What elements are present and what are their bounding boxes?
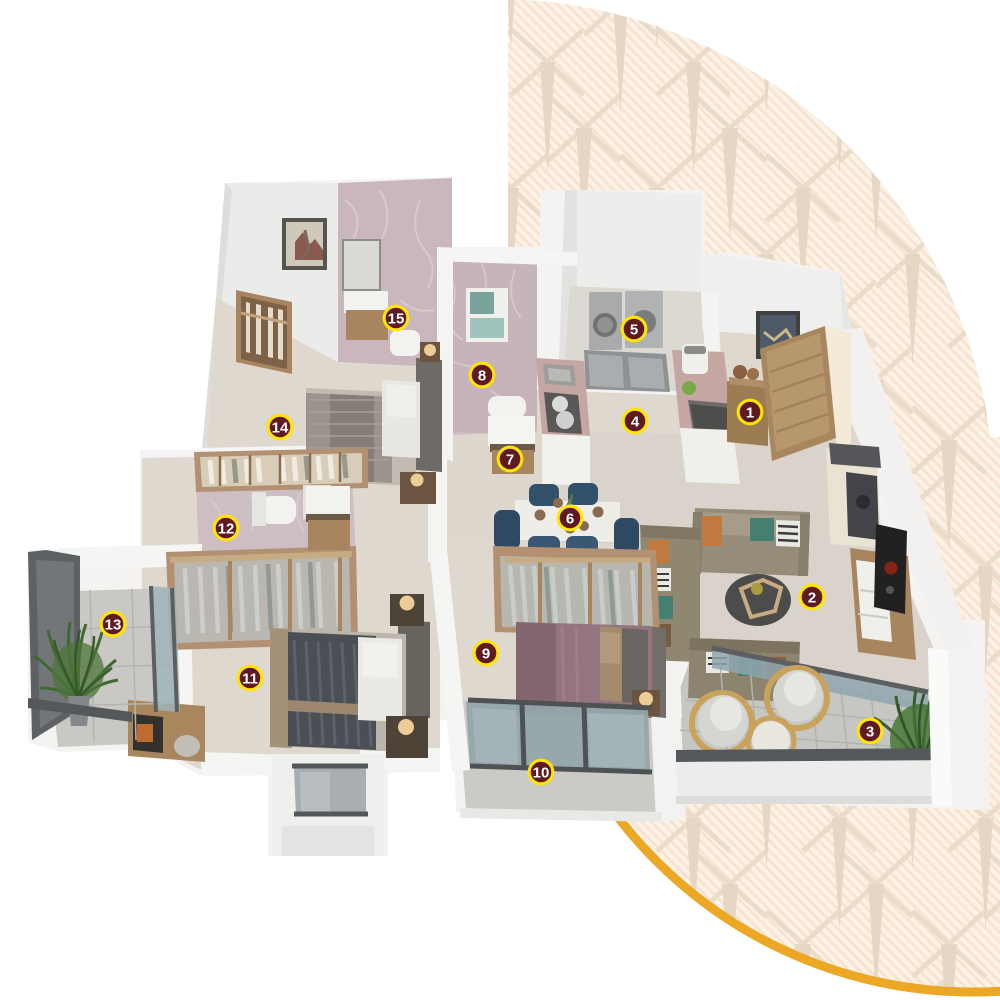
svg-text:3: 3 bbox=[866, 723, 874, 740]
svg-text:6: 6 bbox=[566, 510, 574, 527]
svg-text:12: 12 bbox=[218, 520, 235, 537]
svg-text:8: 8 bbox=[478, 367, 486, 384]
svg-text:5: 5 bbox=[630, 321, 638, 338]
svg-text:15: 15 bbox=[388, 310, 405, 327]
svg-text:7: 7 bbox=[506, 451, 514, 468]
svg-text:9: 9 bbox=[482, 645, 490, 662]
svg-text:1: 1 bbox=[746, 404, 754, 421]
svg-text:11: 11 bbox=[242, 670, 258, 687]
svg-text:4: 4 bbox=[631, 413, 640, 430]
svg-text:2: 2 bbox=[808, 589, 816, 606]
svg-text:10: 10 bbox=[533, 764, 550, 781]
svg-text:14: 14 bbox=[272, 419, 289, 436]
svg-text:13: 13 bbox=[105, 616, 122, 633]
